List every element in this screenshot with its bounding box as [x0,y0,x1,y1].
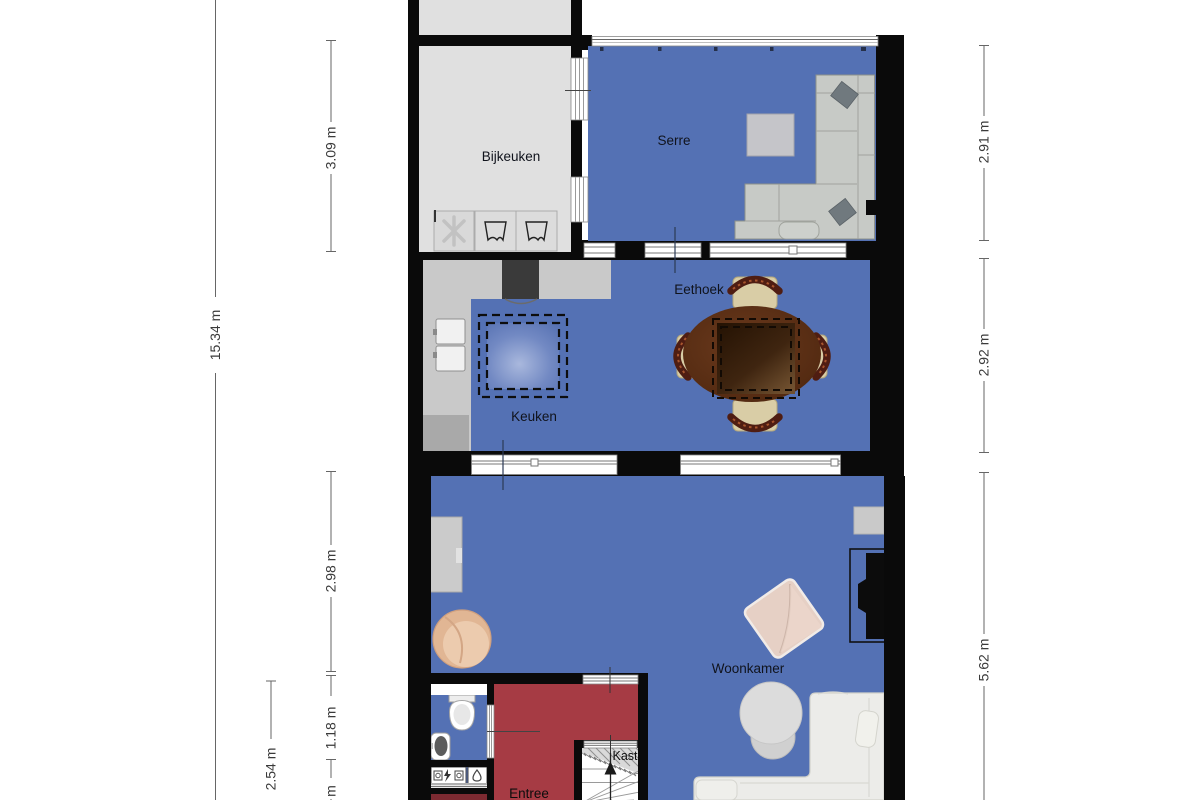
svg-text:5.62 m: 5.62 m [976,639,992,682]
svg-text:Keuken: Keuken [511,409,557,424]
svg-text:Serre: Serre [657,133,690,148]
svg-text:3.09 m: 3.09 m [323,127,339,170]
svg-text:15.34 m: 15.34 m [207,310,223,361]
svg-text:2.92 m: 2.92 m [976,334,992,377]
svg-text:1.18 m: 1.18 m [323,707,339,750]
svg-text:2.98 m: 2.98 m [323,550,339,593]
svg-text:2.54 m: 2.54 m [263,748,279,791]
svg-text:Bijkeuken: Bijkeuken [482,149,541,164]
svg-text:Entree: Entree [509,786,549,800]
svg-text:Eethoek: Eethoek [674,282,724,297]
svg-text:Kast: Kast [612,749,638,763]
svg-text:m: m [323,785,339,797]
svg-text:2.91 m: 2.91 m [976,121,992,164]
svg-text:Woonkamer: Woonkamer [712,661,785,676]
